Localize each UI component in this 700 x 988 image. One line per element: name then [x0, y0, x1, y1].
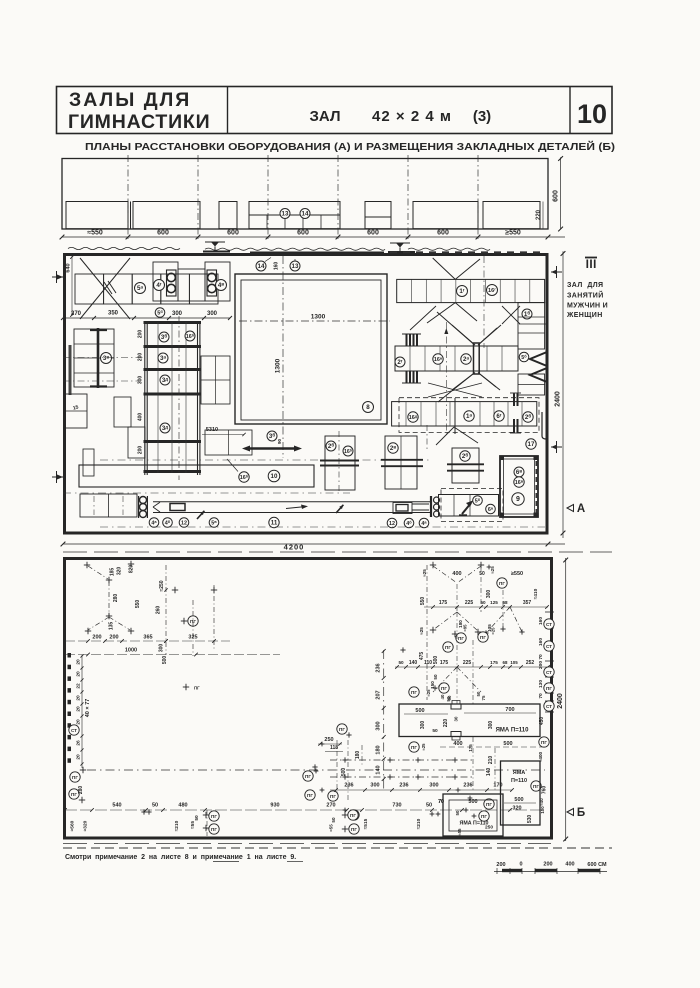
svg-text:42 × 2 4 м: 42 × 2 4 м — [372, 108, 452, 125]
svg-text:ПГ: ПГ — [541, 740, 547, 745]
svg-text:20: 20 — [76, 754, 82, 760]
svg-text:ПГ: ПГ — [350, 813, 356, 818]
svg-text:ЗАНЯТИЙ: ЗАНЯТИЙ — [567, 291, 604, 300]
svg-text:50: 50 — [331, 817, 336, 823]
svg-text:≈25: ≈25 — [419, 627, 424, 635]
svg-text:ПГ: ПГ — [411, 745, 417, 750]
svg-text:ПГ: ПГ — [71, 792, 77, 797]
svg-text:≈25: ≈25 — [421, 743, 426, 751]
svg-text:930: 930 — [270, 803, 279, 809]
svg-text:0: 0 — [519, 862, 522, 868]
svg-text:20: 20 — [76, 671, 82, 677]
svg-text:ПГ: ПГ — [445, 645, 451, 650]
svg-text:Б: Б — [577, 807, 585, 819]
svg-text:10: 10 — [577, 99, 607, 129]
svg-text:50: 50 — [426, 803, 432, 809]
svg-text:270: 270 — [326, 803, 335, 809]
svg-text:50: 50 — [152, 803, 158, 809]
svg-text:14: 14 — [302, 211, 309, 218]
svg-text:300: 300 — [172, 311, 183, 317]
svg-text:ЖЕНЩИН: ЖЕНЩИН — [566, 312, 603, 319]
svg-text:СТ: СТ — [546, 670, 552, 675]
svg-text:СТ: СТ — [546, 622, 552, 627]
svg-text:ПГ: ПГ — [194, 686, 200, 691]
svg-text:≥550: ≥550 — [505, 230, 521, 237]
svg-text:МУЖЧИН И: МУЖЧИН И — [567, 303, 608, 310]
svg-text:300: 300 — [138, 376, 144, 385]
svg-text:ПГ: ПГ — [411, 690, 417, 695]
svg-text:≈55: ≈55 — [190, 821, 196, 829]
svg-text:140: 140 — [376, 765, 382, 774]
svg-text:320: 320 — [117, 567, 123, 576]
svg-text:СТ: СТ — [71, 728, 77, 733]
svg-text:2400: 2400 — [555, 391, 562, 407]
svg-text:ПГ: ПГ — [330, 794, 336, 799]
svg-text:200: 200 — [138, 353, 144, 362]
svg-text:175: 175 — [490, 660, 498, 665]
svg-text:30: 30 — [454, 716, 459, 721]
svg-text:≈550: ≈550 — [87, 230, 103, 237]
svg-text:≈210: ≈210 — [416, 818, 422, 829]
svg-text:ЗАЛЫ ДЛЯ: ЗАЛЫ ДЛЯ — [69, 89, 191, 111]
svg-text:820: 820 — [129, 565, 135, 574]
svg-text:≈55: ≈55 — [329, 824, 334, 832]
svg-text:175: 175 — [440, 660, 449, 666]
svg-text:ПГ: ПГ — [546, 686, 552, 691]
svg-text:≈410: ≈410 — [533, 588, 539, 599]
svg-text:50: 50 — [433, 674, 438, 680]
svg-text:236: 236 — [463, 783, 472, 789]
svg-text:ПГ: ПГ — [499, 581, 505, 586]
svg-text:70: 70 — [538, 654, 544, 660]
svg-text:236: 236 — [344, 783, 353, 789]
svg-text:СТ: СТ — [546, 704, 552, 709]
svg-text:ПГ: ПГ — [533, 784, 539, 789]
svg-text:≈320: ≈320 — [83, 820, 89, 831]
svg-text:50: 50 — [455, 810, 460, 815]
svg-text:50: 50 — [194, 815, 200, 821]
svg-text:220: 220 — [443, 719, 449, 728]
svg-text:20: 20 — [76, 719, 82, 725]
svg-text:760: 760 — [542, 786, 548, 795]
svg-text:236: 236 — [399, 783, 408, 789]
svg-text:600: 600 — [367, 230, 379, 237]
svg-text:480: 480 — [178, 803, 187, 809]
svg-text:40 × 77: 40 × 77 — [85, 699, 91, 718]
svg-text:500: 500 — [514, 797, 523, 803]
svg-text:350: 350 — [108, 311, 119, 317]
svg-text:≈515: ≈515 — [363, 818, 369, 829]
svg-text:110: 110 — [424, 660, 432, 666]
svg-text:ПГ: ПГ — [307, 793, 313, 798]
svg-text:ЯМА П=110: ЯМА П=110 — [496, 728, 529, 734]
svg-text:1000: 1000 — [125, 648, 137, 654]
svg-text:А: А — [577, 503, 585, 515]
svg-text:ЗАЛ: ЗАЛ — [310, 108, 341, 125]
svg-text:175: 175 — [439, 600, 448, 606]
svg-text:≈25: ≈25 — [490, 566, 495, 574]
svg-text:180: 180 — [376, 745, 382, 754]
svg-text:≈55: ≈55 — [457, 828, 462, 836]
svg-text:2400: 2400 — [557, 693, 564, 709]
svg-text:357: 357 — [523, 600, 532, 606]
svg-text:ПЛАНЫ РАССТАНОВКИ ОБОРУДОВАНИ: ПЛАНЫ РАССТАНОВКИ ОБОРУДОВАНИЯ (А) И РАЗ… — [85, 140, 615, 153]
svg-text:13: 13 — [282, 211, 289, 218]
svg-text:50: 50 — [398, 660, 404, 665]
svg-text:180: 180 — [355, 751, 361, 760]
svg-text:20: 20 — [76, 659, 82, 665]
svg-text:10: 10 — [271, 473, 278, 480]
svg-text:365: 365 — [143, 635, 152, 641]
svg-text:600: 600 — [553, 190, 560, 202]
svg-text:СТ: СТ — [546, 644, 552, 649]
svg-text:500: 500 — [503, 741, 512, 747]
svg-text:ЗАЛ ДЛЯ: ЗАЛ ДЛЯ — [567, 282, 603, 289]
svg-text:ПГ: ПГ — [72, 775, 78, 780]
svg-text:50: 50 — [479, 571, 485, 577]
svg-text:400: 400 — [453, 741, 462, 747]
svg-text:≈210: ≈210 — [174, 820, 180, 831]
svg-text:185: 185 — [110, 568, 116, 577]
svg-text:210: 210 — [488, 756, 494, 765]
svg-text:260: 260 — [156, 606, 162, 615]
svg-text:500: 500 — [162, 656, 168, 665]
svg-text:125: 125 — [490, 600, 498, 605]
svg-text:250: 250 — [324, 737, 333, 743]
svg-text:400: 400 — [452, 571, 461, 577]
svg-text:(3): (3) — [473, 108, 491, 125]
svg-text:68: 68 — [503, 660, 508, 665]
svg-text:ГИМНАСТИКИ: ГИМНАСТИКИ — [68, 111, 210, 133]
svg-text:300: 300 — [376, 721, 382, 730]
svg-text:П=110: П=110 — [511, 778, 527, 784]
svg-text:ПГ: ПГ — [441, 686, 447, 691]
svg-text:8: 8 — [366, 404, 370, 411]
svg-text:17: 17 — [528, 441, 535, 448]
svg-text:280: 280 — [113, 594, 119, 603]
svg-text:300: 300 — [207, 311, 218, 317]
svg-text:325: 325 — [188, 635, 197, 641]
svg-text:140: 140 — [409, 660, 418, 666]
svg-text:≈25: ≈25 — [491, 627, 496, 635]
svg-text:500: 500 — [341, 768, 347, 777]
svg-text:530: 530 — [527, 815, 533, 824]
svg-text:≈25: ≈25 — [426, 689, 431, 697]
svg-text:700: 700 — [505, 707, 514, 713]
svg-text:≈95: ≈95 — [463, 624, 468, 632]
svg-text:ПГ: ПГ — [211, 814, 217, 819]
svg-text:≈25: ≈25 — [422, 569, 427, 577]
svg-text:4200: 4200 — [284, 543, 305, 552]
svg-text:ПГ: ПГ — [305, 774, 311, 779]
svg-text:300: 300 — [420, 721, 426, 730]
svg-text:Смотри примечание 2 на лис: Смотри примечание 2 на листе 8 и примеча… — [65, 854, 296, 861]
svg-text:22: 22 — [76, 683, 82, 689]
svg-text:500: 500 — [433, 656, 439, 665]
svg-text:200: 200 — [543, 862, 552, 868]
svg-text:475: 475 — [419, 652, 425, 661]
svg-text:500: 500 — [415, 708, 424, 714]
svg-text:1300: 1300 — [275, 358, 282, 373]
svg-text:11: 11 — [271, 520, 278, 527]
svg-text:70: 70 — [538, 693, 544, 699]
svg-text:225: 225 — [465, 600, 474, 606]
svg-text:600: 600 — [437, 230, 449, 237]
svg-text:175: 175 — [468, 744, 473, 752]
svg-text:12: 12 — [181, 521, 187, 527]
svg-text:1300: 1300 — [311, 314, 326, 321]
svg-text:300: 300 — [488, 721, 494, 730]
svg-text:640: 640 — [66, 263, 72, 272]
svg-text:≥550: ≥550 — [511, 571, 523, 577]
svg-text:236: 236 — [376, 663, 382, 672]
svg-text:400: 400 — [138, 413, 144, 422]
svg-text:550: 550 — [420, 597, 426, 606]
svg-text:225: 225 — [463, 660, 472, 666]
svg-text:26: 26 — [76, 740, 82, 746]
svg-text:540: 540 — [112, 803, 121, 809]
svg-text:ЯМА: ЯМА — [513, 770, 526, 776]
svg-text:ПГ: ПГ — [480, 635, 486, 640]
svg-text:160: 160 — [538, 638, 544, 646]
svg-text:300: 300 — [159, 644, 165, 653]
svg-text:40: 40 — [440, 694, 445, 699]
svg-text:135: 135 — [109, 622, 115, 631]
svg-text:400: 400 — [565, 862, 574, 868]
svg-text:252: 252 — [526, 660, 535, 666]
svg-text:200: 200 — [538, 661, 544, 669]
svg-text:≈250: ≈250 — [159, 580, 165, 591]
svg-text:600: 600 — [297, 230, 309, 237]
svg-text:600 СМ: 600 СМ — [587, 862, 607, 868]
svg-text:550: 550 — [135, 600, 141, 609]
svg-text:ПГ: ПГ — [211, 827, 217, 832]
svg-text:730: 730 — [392, 803, 401, 809]
svg-text:320: 320 — [512, 806, 521, 812]
svg-text:50: 50 — [446, 696, 451, 702]
svg-text:105: 105 — [510, 660, 518, 665]
svg-text:130: 130 — [538, 680, 544, 688]
svg-text:90: 90 — [277, 439, 282, 445]
svg-text:160: 160 — [538, 617, 544, 625]
svg-text:75: 75 — [481, 695, 486, 700]
svg-text:ПГ: ПГ — [351, 827, 357, 832]
svg-text:12: 12 — [389, 521, 395, 527]
svg-text:50: 50 — [432, 728, 438, 734]
svg-text:20: 20 — [76, 695, 82, 701]
svg-text:5310: 5310 — [206, 427, 218, 433]
svg-text:200: 200 — [496, 862, 505, 868]
svg-text:250: 250 — [485, 825, 493, 831]
svg-text:160: 160 — [274, 262, 280, 271]
svg-text:ПГ: ПГ — [339, 727, 345, 732]
svg-text:9: 9 — [516, 496, 520, 503]
svg-text:207: 207 — [376, 690, 382, 699]
svg-text:ПГ: ПГ — [481, 814, 487, 819]
svg-text:600: 600 — [157, 230, 169, 237]
svg-text:14: 14 — [258, 263, 265, 270]
svg-text:300: 300 — [370, 783, 379, 789]
svg-text:ПГ: ПГ — [486, 802, 492, 807]
svg-text:280: 280 — [78, 786, 84, 795]
svg-text:ПГ: ПГ — [458, 636, 464, 641]
svg-text:200: 200 — [92, 635, 101, 641]
svg-text:300: 300 — [486, 590, 492, 599]
svg-text:220: 220 — [536, 209, 542, 220]
svg-text:20: 20 — [76, 706, 82, 712]
svg-text:140: 140 — [486, 768, 492, 777]
svg-text:100: 100 — [540, 806, 545, 814]
svg-text:13: 13 — [292, 263, 299, 270]
svg-text:200: 200 — [138, 330, 144, 339]
svg-text:300: 300 — [429, 783, 438, 789]
svg-text:200: 200 — [138, 446, 144, 455]
svg-text:600: 600 — [227, 230, 239, 237]
svg-text:200: 200 — [109, 635, 118, 641]
svg-text:≈560: ≈560 — [70, 820, 76, 831]
